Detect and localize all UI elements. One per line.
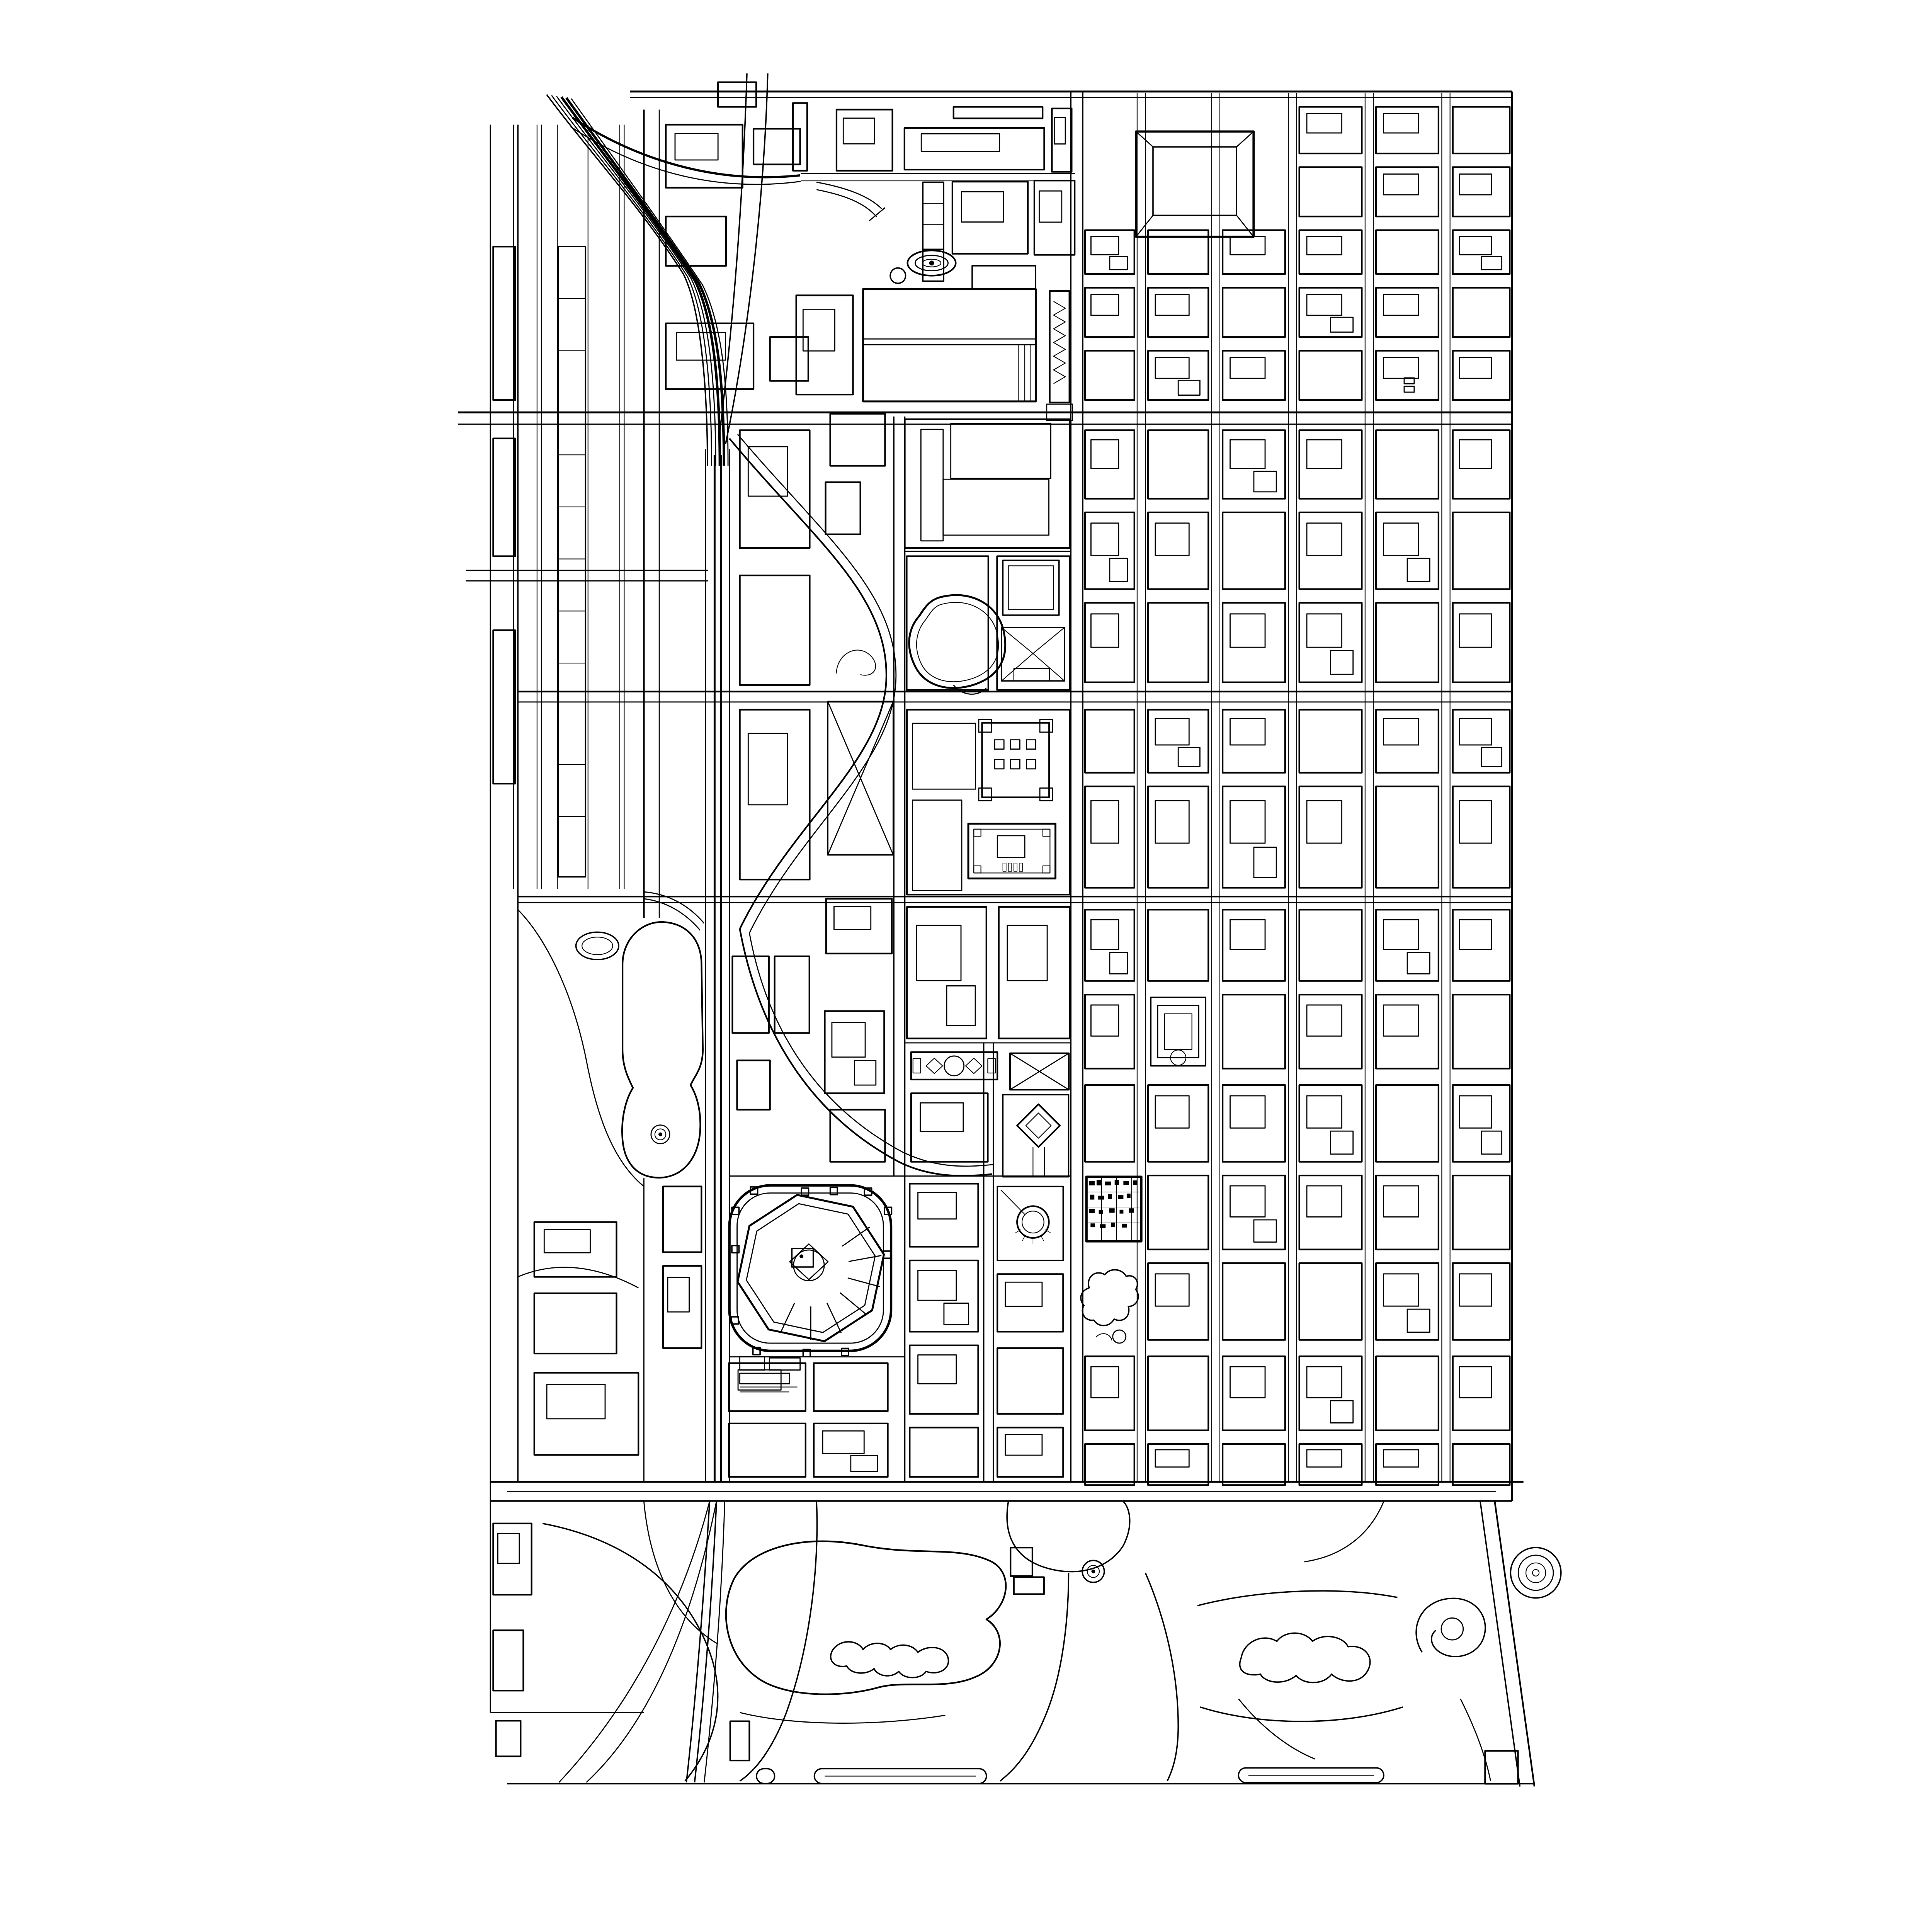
city-blocks xyxy=(493,82,1518,1784)
south-park xyxy=(543,1502,1561,1784)
site-plan-page xyxy=(0,0,1932,1835)
rail-corridor-curves xyxy=(547,73,993,1782)
city-blocks-grid xyxy=(1085,107,1510,1485)
site-plan-map xyxy=(0,0,1932,1835)
rail-yard-platforms xyxy=(514,125,624,889)
long-pond-park xyxy=(518,910,703,1288)
baseball-stadium xyxy=(730,1185,892,1392)
